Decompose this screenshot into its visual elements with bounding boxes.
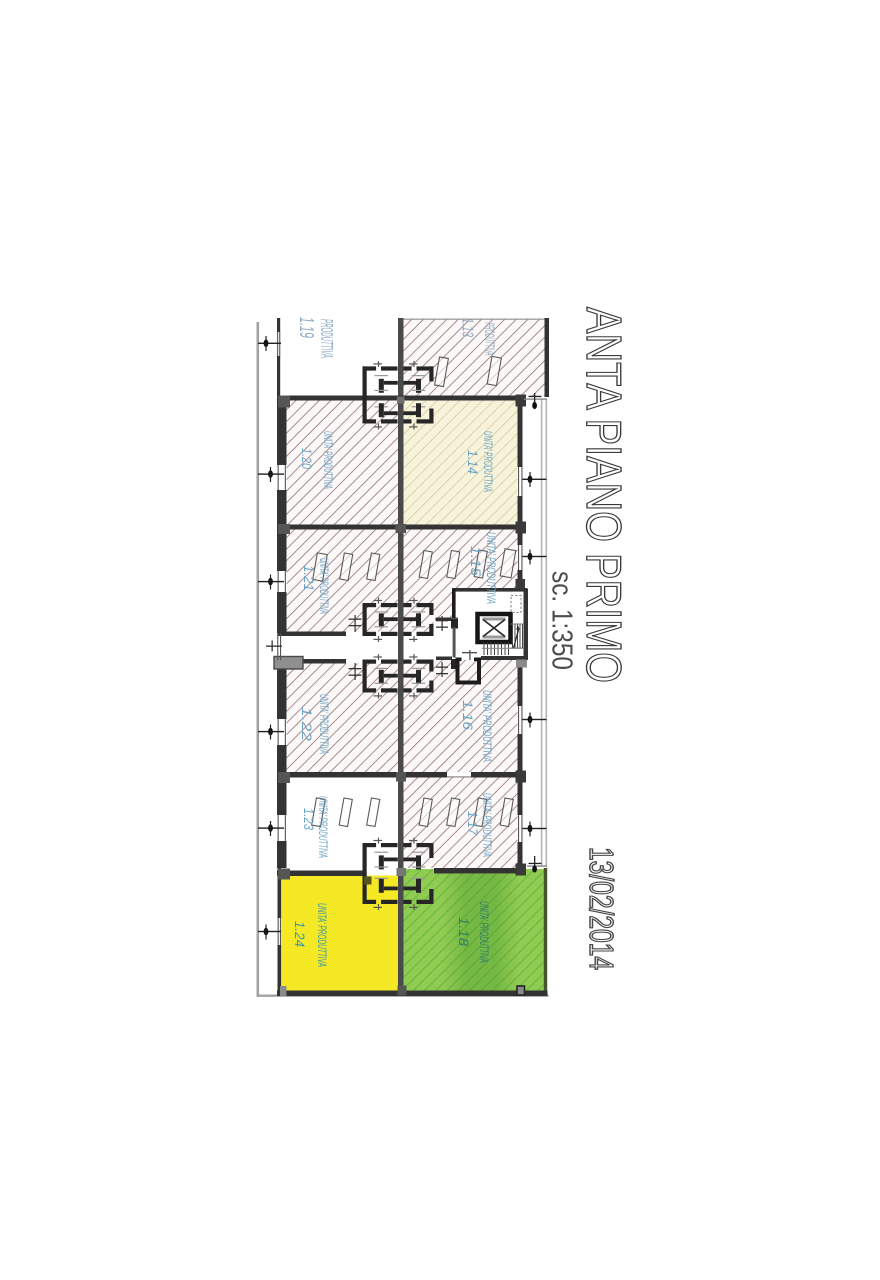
svg-text:UNITA' PRODUTTIVA: UNITA' PRODUTTIVA	[317, 694, 331, 754]
svg-text:1.23: 1.23	[301, 808, 317, 830]
svg-text:1.20: 1.20	[299, 448, 315, 469]
svg-text:PRODUTTIVA: PRODUTTIVA	[482, 323, 497, 356]
svg-text:UNITA' PRODUTTIVA: UNITA' PRODUTTIVA	[321, 431, 335, 489]
svg-text:UNITA' PRODUTTIVA: UNITA' PRODUTTIVA	[316, 796, 330, 858]
svg-text:1.17: 1.17	[465, 811, 481, 836]
svg-text:PRODUTTIVA: PRODUTTIVA	[317, 319, 337, 358]
svg-text:ANTA PIANO PRIMO: ANTA PIANO PRIMO	[576, 307, 630, 683]
svg-text:1.21: 1.21	[301, 565, 317, 591]
svg-text:13/02/2014: 13/02/2014	[583, 847, 620, 970]
svg-text:UNITA' PRODUTTIVA: UNITA' PRODUTTIVA	[317, 558, 331, 614]
svg-text:1.18: 1.18	[456, 917, 472, 946]
svg-text:sc. 1:350: sc. 1:350	[546, 571, 578, 670]
svg-text:1.24: 1.24	[292, 921, 308, 947]
svg-text:1.14: 1.14	[465, 450, 481, 474]
svg-text:1.19: 1.19	[295, 317, 317, 338]
svg-text:UNITA' PRODUTTIVA: UNITA' PRODUTTIVA	[481, 431, 495, 492]
svg-text:1.16: 1.16	[460, 700, 476, 730]
svg-text:UNITA' PRODUTTIVA: UNITA' PRODUTTIVA	[480, 793, 494, 857]
svg-text:UNITA' PRODUTTIVA: UNITA' PRODUTTIVA	[315, 903, 329, 967]
svg-text:UNITA' PRODUTTIVA: UNITA' PRODUTTIVA	[477, 901, 491, 963]
svg-text:UNITA' PRODUTTIVA: UNITA' PRODUTTIVA	[484, 532, 498, 604]
svg-text:UNITA' PRODUTTIVA: UNITA' PRODUTTIVA	[480, 690, 494, 762]
svg-text:1.13: 1.13	[459, 318, 476, 337]
svg-text:1.22: 1.22	[299, 707, 315, 741]
svg-text:1.15: 1.15	[468, 546, 484, 576]
